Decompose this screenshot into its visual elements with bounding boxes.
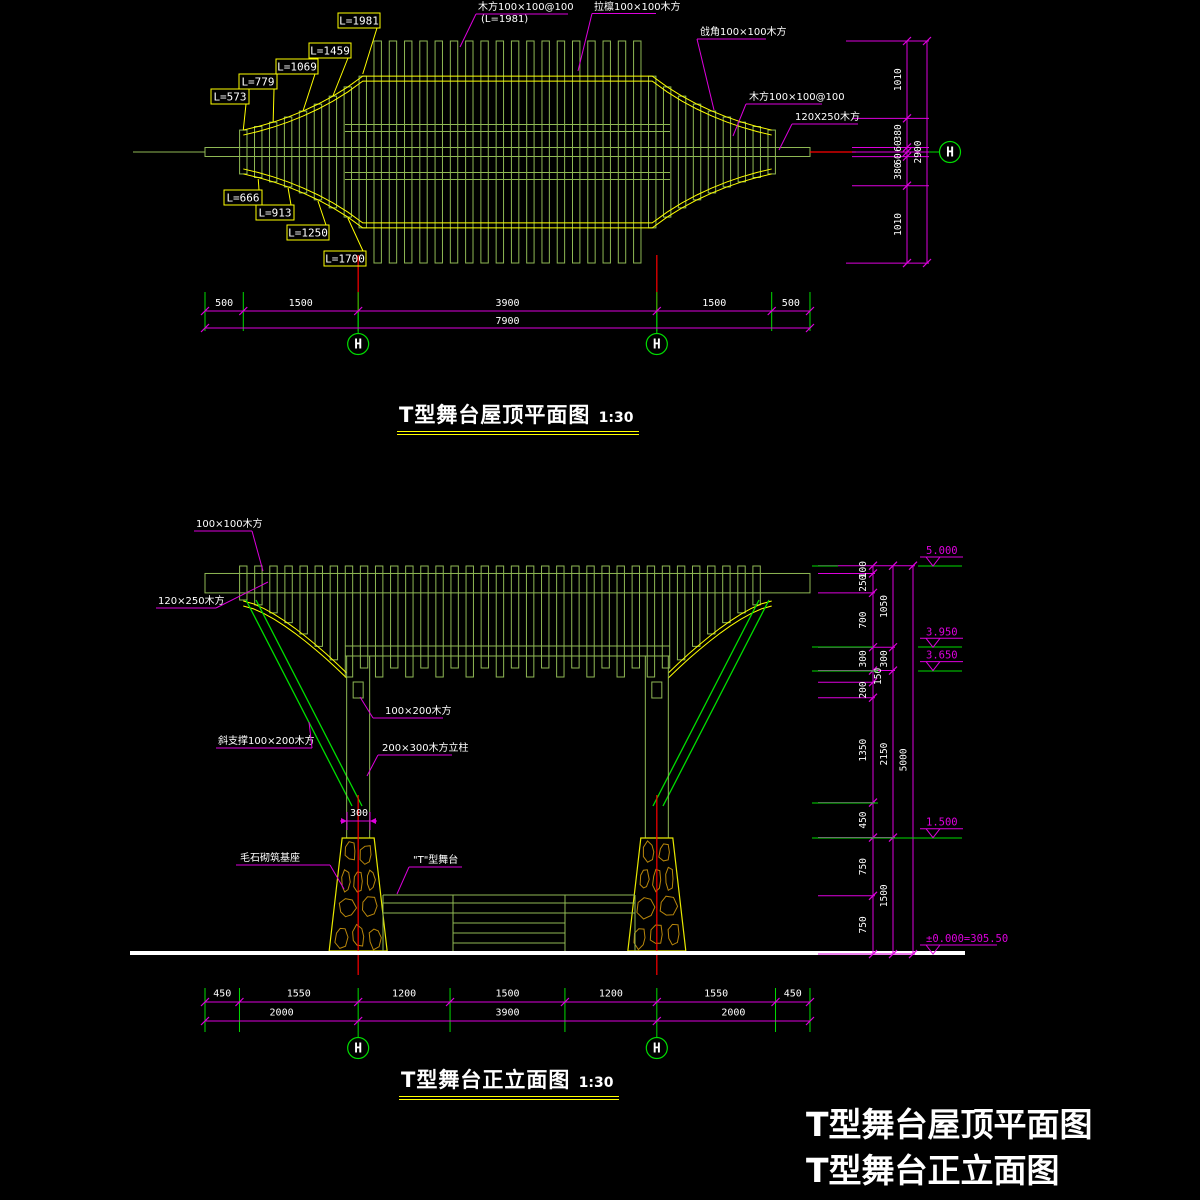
length-label-leader: [273, 89, 274, 122]
elev-label-purlin: 100×200木方: [360, 697, 452, 718]
plan-label-beam-text: 120X250木方: [795, 110, 860, 123]
dim-total-value: 7900: [495, 316, 519, 327]
dim-total-value-v: 5000: [899, 748, 910, 771]
elev-slat: [587, 566, 594, 677]
grid-marker: H: [940, 142, 961, 163]
plan-label-slat-top-text: 木方100×100@100: [478, 0, 574, 13]
sheet-name-line1: T型舞台屋顶平面图: [806, 1102, 1093, 1148]
grid-marker: H: [646, 1038, 667, 1059]
dim-value-v: 380: [893, 124, 904, 141]
elev-slat: [436, 566, 443, 677]
length-label-text: L=1981: [339, 15, 379, 28]
plan-label-slat-top: 木方100×100@100(L=1981): [460, 0, 574, 47]
plan-label-purlin-text: 拉檩100×100木方: [594, 0, 681, 13]
leader-line: [360, 697, 373, 718]
plan-slat: [329, 96, 336, 208]
stone: [640, 870, 649, 888]
dim-total-value-v: 2900: [913, 140, 924, 163]
dim-value-v: 450: [858, 811, 869, 828]
plan-slat: [572, 41, 579, 263]
plan-slat: [284, 117, 291, 187]
length-label-text: L=779: [241, 76, 274, 89]
elev-slat: [315, 566, 322, 646]
length-label-leader: [363, 28, 377, 74]
elev-slat: [511, 566, 518, 668]
dim-value: 1550: [287, 989, 311, 1000]
plan-slat: [542, 41, 549, 263]
stone: [637, 898, 655, 919]
spot-level-triangle: [926, 829, 940, 838]
stone: [666, 867, 673, 890]
sheet-name-block: T型舞台屋顶平面图 T型舞台正立面图: [806, 1102, 1093, 1194]
elev-slat: [526, 566, 533, 677]
spot-level: 5.000: [920, 545, 963, 566]
plan-slat: [481, 41, 488, 263]
spot-level-value: 1.500: [926, 817, 958, 829]
elev-label-stage: "T"型舞台: [397, 853, 462, 894]
stone: [335, 928, 348, 948]
elev-label-base-text: 毛石砌筑基座: [240, 851, 300, 864]
plan-slat: [557, 41, 564, 263]
elev-label-brace: 斜支撑100×200木方: [216, 722, 315, 748]
elev-label-purlin-text: 100×200木方: [385, 704, 452, 717]
spot-level-value: 3.950: [926, 626, 958, 638]
dim-value: 1200: [392, 989, 416, 1000]
length-label-leader: [318, 201, 326, 225]
cad-canvas: HHH5001500390015005007900101038060603801…: [0, 0, 1200, 1200]
dim-value: 500: [782, 298, 800, 309]
elev-slat: [542, 566, 549, 668]
plan-label-hip-text: 戗角100×100木方: [700, 25, 787, 38]
elev-slat: [693, 566, 700, 646]
length-label-leader: [333, 58, 348, 96]
elev-eave-curve: [668, 606, 771, 678]
dim-value-v: 750: [858, 916, 869, 933]
elev-slat: [602, 566, 609, 668]
plan-slat: [466, 41, 473, 263]
dim-value-v: 300: [858, 650, 869, 667]
plan-slat: [435, 41, 442, 263]
length-label-leader: [258, 179, 259, 190]
length-label-text: L=1459: [310, 45, 350, 58]
plan-label-slat-right-text: 木方100×100@100: [749, 90, 845, 103]
grid-marker-letter: H: [354, 338, 362, 353]
elev-slat: [632, 566, 639, 668]
dim-value-v: 1010: [893, 68, 904, 91]
elev-slat: [677, 566, 684, 660]
dim-value: 1200: [599, 989, 623, 1000]
dim-value-v: 380: [893, 162, 904, 179]
leader-line: [397, 867, 409, 894]
column-width-value: 300: [350, 808, 368, 819]
dim-value: 450: [213, 989, 231, 1000]
elev-label-column-text: 200×300木方立柱: [382, 741, 469, 754]
stone: [643, 841, 653, 862]
elev-slat: [406, 566, 413, 677]
elev-slat: [708, 566, 715, 634]
dim-value-v: 200: [858, 681, 869, 698]
elev-slat: [572, 566, 579, 668]
sheet-name-line2: T型舞台正立面图: [806, 1148, 1093, 1194]
plan-slat: [634, 41, 641, 263]
elev-label-beam: 120×250木方: [156, 582, 268, 608]
spot-level-value: 3.650: [926, 650, 958, 662]
length-label-leader: [303, 74, 315, 111]
elev-slat: [557, 566, 564, 677]
length-label-text: L=573: [213, 91, 246, 104]
plan-slat: [708, 111, 715, 193]
plan-slat: [738, 122, 745, 182]
dim-value-v: 300: [879, 650, 890, 667]
dim-value-v: 1500: [879, 884, 890, 907]
grid-marker: H: [646, 334, 667, 355]
leader-line: [216, 582, 268, 608]
plan-slat: [344, 87, 351, 217]
elev-label-slat: 100×100木方: [194, 517, 263, 571]
stone: [659, 844, 670, 861]
grid-marker-letter: H: [354, 1042, 362, 1057]
elev-label-base: 毛石砌筑基座: [236, 851, 344, 889]
elev-slat: [421, 566, 428, 668]
elev-eave-curve: [243, 606, 346, 678]
stone: [345, 842, 355, 860]
plan-slat: [678, 96, 685, 208]
plan-slat: [693, 104, 700, 200]
plan-slat: [240, 130, 247, 174]
plan-purlin-curve: [243, 174, 771, 228]
plan-slat: [496, 41, 503, 263]
length-label-text: L=1700: [325, 253, 365, 266]
elev-eave-curve: [243, 601, 346, 673]
plan-slat: [588, 41, 595, 263]
spot-level-triangle: [926, 638, 940, 647]
plan-slat: [663, 87, 670, 217]
plan-slat: [389, 41, 396, 263]
elev-label-column: 200×300木方立柱: [367, 741, 469, 776]
plan-slat: [649, 76, 656, 228]
dim-value-v: 60: [893, 140, 904, 152]
plan-purlin-curve: [243, 81, 771, 135]
plan-purlin-curve: [243, 76, 771, 130]
dim-value: 500: [215, 298, 233, 309]
plan-slat: [420, 41, 427, 263]
leader-line: [252, 531, 263, 571]
grid-marker-letter: H: [653, 1042, 661, 1057]
elev-slat: [360, 566, 367, 668]
plan-slat: [269, 122, 276, 182]
dim-value-v: 2150: [879, 742, 890, 765]
plan-slat: [374, 41, 381, 263]
dim-value: 1550: [704, 989, 728, 1000]
elev-eave-curve: [668, 601, 771, 673]
elev-label-beam-text: 120×250木方: [158, 594, 225, 607]
dim-value: 3900: [495, 298, 519, 309]
dim-value: 1500: [495, 989, 519, 1000]
elevation-drawing: 45015501200150012001550450200039002000HH…: [130, 517, 1008, 1059]
stone: [369, 929, 381, 950]
stone: [634, 929, 645, 950]
leader-line: [697, 39, 714, 110]
main-beam-plan: [205, 148, 810, 157]
dim-value-v: 150: [873, 668, 884, 685]
stone: [360, 846, 371, 865]
elev-slat: [753, 566, 760, 605]
stone: [339, 899, 356, 917]
elevation-title-scale: 1:30: [579, 1075, 614, 1091]
length-label-text: L=1069: [277, 61, 317, 74]
elev-slat: [466, 566, 473, 677]
spot-level: ±0.000=305.50: [920, 933, 1008, 954]
plan-title: T型舞台屋顶平面图 1:30: [397, 399, 639, 435]
brace: [256, 600, 362, 806]
plan-slat: [314, 104, 321, 200]
column-bracket: [652, 682, 662, 698]
arrow: [370, 818, 376, 824]
elev-slat: [496, 566, 503, 677]
plan-slat: [359, 76, 366, 228]
elev-label-brace-text: 斜支撑100×200木方: [218, 734, 315, 747]
elev-slat: [375, 566, 382, 677]
dim-value: 2000: [270, 1008, 294, 1019]
plan-slat: [603, 41, 610, 263]
grid-marker-letter: H: [946, 146, 954, 161]
plan-slat: [527, 41, 534, 263]
dim-value-v: 700: [858, 611, 869, 628]
dim-value: 450: [784, 989, 802, 1000]
length-label-text: L=1250: [288, 227, 328, 240]
elev-label-stage-text: "T"型舞台: [413, 853, 458, 866]
plan-slat: [299, 111, 306, 193]
brace: [653, 600, 759, 806]
dim-value-v: 1010: [893, 213, 904, 236]
leader-line: [367, 755, 378, 776]
spot-level-value: 5.000: [926, 545, 958, 557]
plan-slat: [768, 130, 775, 174]
dim-value: 1500: [289, 298, 313, 309]
elevation-title: T型舞台正立面图 1:30: [399, 1064, 619, 1100]
grid-marker: H: [348, 1038, 369, 1059]
plan-title-text: T型舞台屋顶平面图: [399, 403, 590, 427]
leader-line: [460, 14, 476, 47]
stone: [668, 924, 679, 945]
plan-slat: [511, 41, 518, 263]
plan-slat: [753, 126, 760, 177]
elev-slat: [481, 566, 488, 668]
leader-line: [779, 124, 792, 150]
spot-level-value: ±0.000=305.50: [926, 933, 1008, 945]
grid-marker: H: [348, 334, 369, 355]
elev-slat: [285, 566, 292, 623]
elev-slat: [662, 566, 669, 668]
main-beam-elev: [205, 573, 810, 592]
length-label-leader: [288, 188, 291, 205]
dim-value-v: 1350: [858, 738, 869, 761]
plan-slat: [618, 41, 625, 263]
plan-title-scale: 1:30: [599, 410, 634, 426]
length-label-leader: [243, 104, 246, 130]
plan-slat: [405, 41, 412, 263]
plan-slat: [255, 126, 262, 177]
column-bracket: [353, 682, 363, 698]
elev-slat: [723, 566, 730, 623]
stone: [660, 896, 677, 915]
stone: [342, 870, 351, 892]
grid-marker-letter: H: [653, 338, 661, 353]
length-label: L=1069: [276, 59, 318, 111]
elev-slat: [451, 566, 458, 668]
roof-plan-drawing: HHH5001500390015005007900101038060603801…: [133, 0, 961, 355]
plan-slat: [450, 41, 457, 263]
plan-slat: [723, 117, 730, 187]
dim-value: 1500: [702, 298, 726, 309]
elev-slat: [391, 566, 398, 668]
length-label-text: L=913: [258, 207, 291, 220]
dim-value-v: 750: [858, 858, 869, 875]
elev-slat: [647, 566, 654, 677]
elev-slat: [617, 566, 624, 677]
elevation-title-text: T型舞台正立面图: [401, 1068, 570, 1092]
length-label: L=666: [224, 179, 262, 205]
plan-label-purlin: 拉檩100×100木方: [578, 0, 681, 71]
length-label-text: L=666: [226, 192, 259, 205]
spot-level-triangle: [926, 662, 940, 671]
spot-level: 1.500: [920, 817, 963, 838]
elev-slat: [330, 566, 337, 660]
dim-value-v: 1050: [879, 595, 890, 618]
dim-value-v: 250: [858, 574, 869, 591]
spot-level-triangle: [926, 557, 940, 566]
plan-label-slat-top-subtext: (L=1981): [481, 14, 528, 25]
plan-label-beam: 120X250木方: [779, 110, 860, 150]
length-label: L=573: [211, 89, 249, 130]
stone: [367, 870, 375, 890]
arrow: [341, 818, 347, 824]
stone: [363, 897, 378, 917]
dim-value: 3900: [495, 1008, 519, 1019]
spot-level: 3.650: [920, 650, 963, 671]
spot-level: 3.950: [920, 626, 963, 647]
elev-slat: [300, 566, 307, 634]
dim-value: 2000: [721, 1008, 745, 1019]
elev-label-slat-text: 100×100木方: [196, 517, 263, 530]
